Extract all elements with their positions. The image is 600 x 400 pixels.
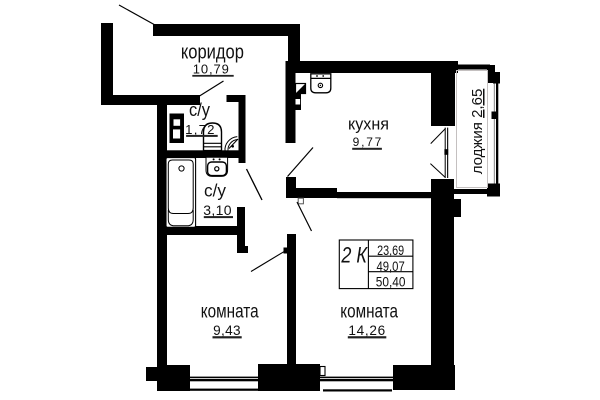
svg-text:3,10: 3,10 (203, 202, 231, 218)
svg-text:49,07: 49,07 (376, 259, 404, 274)
svg-text:14,26: 14,26 (348, 323, 385, 338)
svg-text:комната: комната (201, 302, 259, 323)
svg-text:с/у: с/у (204, 181, 226, 201)
svg-text:9,43: 9,43 (213, 323, 240, 338)
svg-text:коридор: коридор (181, 41, 244, 63)
svg-text:лоджия 2,65: лоджия 2,65 (469, 89, 486, 175)
svg-text:23,69: 23,69 (377, 243, 404, 258)
svg-text:9,77: 9,77 (353, 135, 382, 149)
svg-text:10,79: 10,79 (193, 62, 229, 77)
svg-text:50,40: 50,40 (376, 275, 406, 290)
svg-text:комната: комната (340, 302, 398, 323)
svg-text:с/у: с/у (189, 99, 211, 120)
svg-text:кухня: кухня (348, 114, 389, 133)
svg-text:1,72: 1,72 (185, 122, 214, 137)
svg-text:2 К: 2 К (341, 242, 368, 267)
